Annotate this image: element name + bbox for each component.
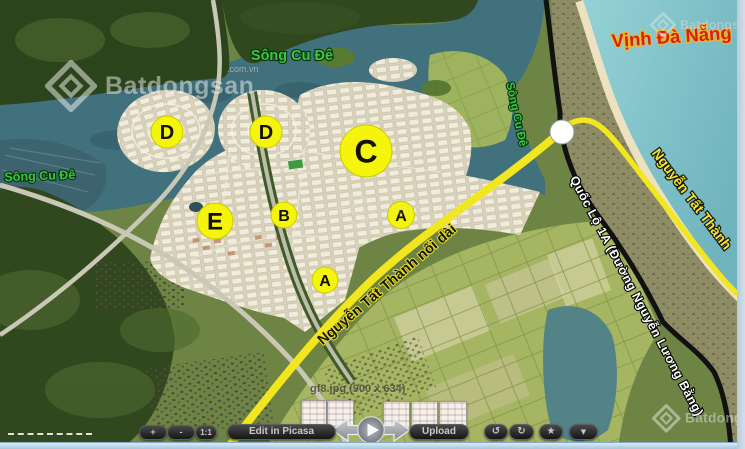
window-bottom-edge: [0, 442, 745, 449]
zone-marker-a2: A: [312, 267, 338, 293]
zone-label-d2: D: [259, 122, 273, 144]
zone-label-a2: A: [319, 273, 331, 290]
zone-label-e: E: [207, 209, 223, 236]
window-right-edge: [737, 0, 745, 449]
rotate-right-button[interactable]: ↻: [509, 424, 534, 440]
rotate-left-button[interactable]: ↺: [484, 424, 508, 440]
stadium: [288, 159, 304, 170]
roundabout: [550, 120, 574, 144]
zone-label-d1: D: [160, 122, 174, 144]
zoom-in-button[interactable]: +: [139, 425, 167, 440]
upload-button[interactable]: Upload: [409, 424, 469, 440]
zone-marker-e: E: [197, 203, 233, 239]
zone-label-b: B: [278, 208, 290, 225]
dashed-boundary-line: [8, 433, 92, 435]
zone-marker-c: C: [340, 125, 392, 177]
master-plan-map-image: D D C E B A A Sông Cu Đê Sông Cu Đê Sông…: [0, 0, 745, 449]
star-button[interactable]: ★: [539, 424, 563, 440]
zone-marker-d2: D: [250, 116, 282, 148]
slideshow-navigation: [331, 416, 411, 444]
image-filename-caption: gf8.jpg (900 x 634): [310, 383, 405, 395]
zoom-out-button[interactable]: -: [167, 425, 195, 440]
actual-size-button[interactable]: 1:1: [195, 425, 217, 440]
zone-marker-b: B: [271, 202, 297, 228]
more-dropdown-button[interactable]: ▼: [569, 424, 598, 440]
pond: [543, 306, 617, 441]
edit-in-picasa-button[interactable]: Edit in Picasa: [227, 424, 336, 440]
label-song-cu-de-left: Sông Cu Đê: [4, 168, 75, 184]
zone-label-c: C: [354, 134, 377, 170]
picasa-photo-viewer: D D C E B A A Sông Cu Đê Sông Cu Đê Sông…: [0, 0, 745, 449]
zone-marker-a1: A: [388, 202, 415, 229]
zone-label-a1: A: [395, 208, 407, 225]
label-song-cu-de-top: Sông Cu Đê: [251, 48, 333, 64]
zone-marker-d1: D: [151, 116, 183, 148]
